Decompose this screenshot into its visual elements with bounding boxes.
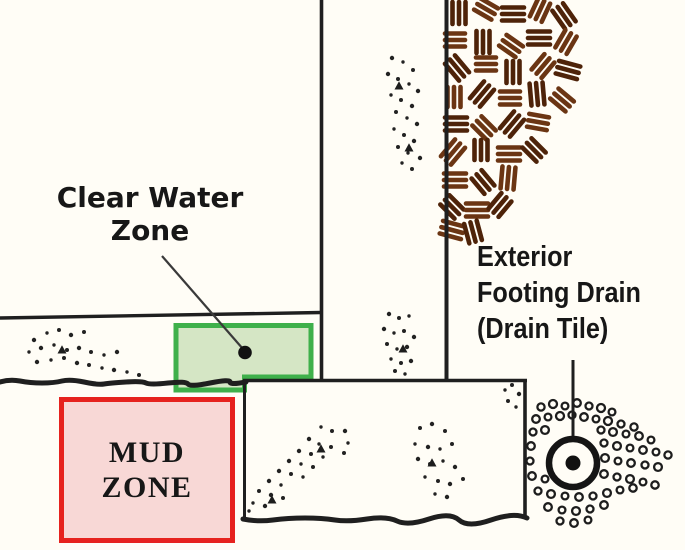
mud-line: [0, 380, 246, 385]
basement-floor-line: [0, 313, 321, 319]
clear-water-zone-label-line1: Clear Water: [30, 181, 270, 214]
mud-zone-label-line1: MUD: [101, 435, 192, 470]
exterior-footing-drain-label-line1: Exterior: [477, 239, 641, 275]
exterior-footing-drain-label-line3: (Drain Tile): [477, 311, 641, 347]
footing-bottom-edge: [243, 515, 527, 524]
drain-tile-center-dot: [566, 456, 581, 471]
clear-water-zone-label: Clear Water Zone: [30, 181, 270, 247]
exterior-footing-drain-label-line2: Footing Drain: [477, 275, 641, 311]
mud-zone-label: MUD ZONE: [101, 435, 192, 505]
exterior-footing-drain-label: Exterior Footing Drain (Drain Tile): [477, 239, 641, 347]
clear-water-zone-marker-dot: [238, 346, 252, 360]
mud-zone-box: MUD ZONE: [59, 397, 235, 543]
foundation-cross-section-diagram: Clear Water Zone MUD ZONE Exterior Footi…: [0, 0, 685, 550]
drain-tile-symbol: [549, 439, 597, 487]
backfill-hatch-texture: [440, 0, 581, 243]
clear-water-zone-label-line2: Zone: [30, 214, 270, 247]
mud-zone-label-line2: ZONE: [101, 470, 192, 505]
footing-outline: [243, 380, 527, 524]
